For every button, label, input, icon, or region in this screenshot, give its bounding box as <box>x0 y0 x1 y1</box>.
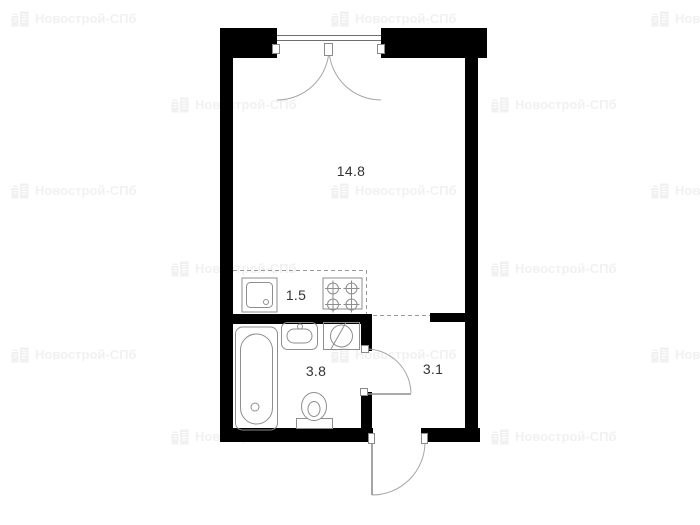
bathroom-door-jamb-bottom <box>360 388 368 396</box>
room-area-living-room: 14.8 <box>337 163 365 179</box>
toilet-icon <box>297 393 333 429</box>
balcony-door-arcs <box>277 50 381 100</box>
balcony-door-center-post <box>324 43 333 56</box>
bathtub-icon <box>236 327 278 430</box>
room-area-bathroom: 3.8 <box>306 363 326 379</box>
washbasin-icon <box>282 323 318 350</box>
bathroom-door <box>364 349 411 394</box>
floor-plan-canvas: Новострой-СПб Новострой-СПб <box>0 0 700 525</box>
balcony-door-jamb-right <box>377 44 385 54</box>
plan-linework <box>0 0 700 525</box>
stove-burners-icon <box>323 278 362 313</box>
washing-machine-icon <box>324 323 360 350</box>
entrance-door-jamb-left <box>368 433 375 444</box>
bathroom-door-jamb-top <box>361 345 369 353</box>
entrance-door-jamb-right <box>421 433 428 444</box>
entrance-door <box>372 442 425 495</box>
room-area-kitchen-niche: 1.5 <box>286 287 306 303</box>
kitchen-sink-icon <box>242 278 277 312</box>
room-area-hallway: 3.1 <box>423 361 443 377</box>
balcony-door-jamb-left <box>272 44 280 54</box>
